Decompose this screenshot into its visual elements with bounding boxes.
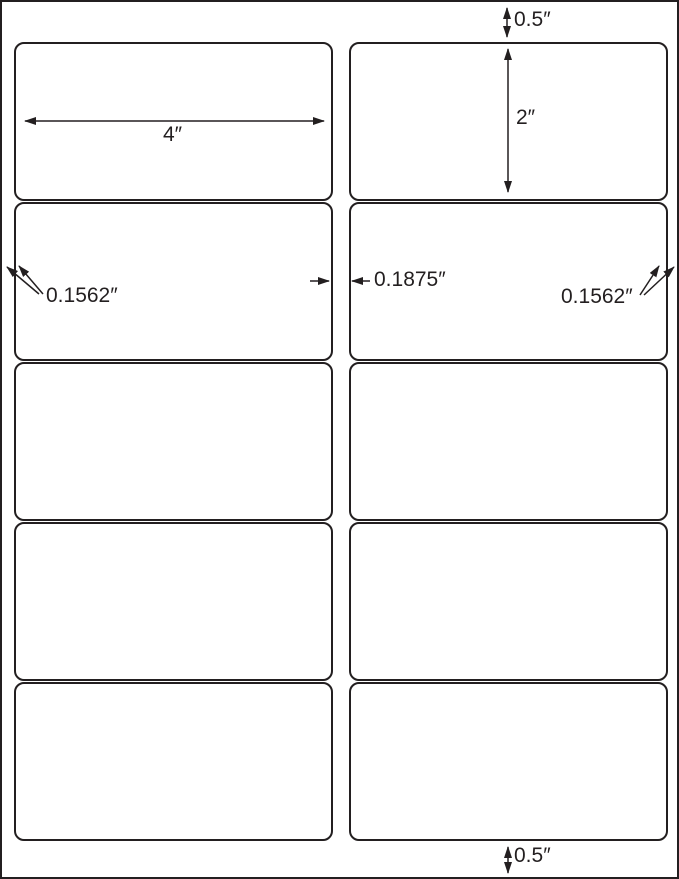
- label-cell-r3c2: [349, 362, 668, 521]
- label-cell-r1c1: [14, 42, 333, 201]
- top-margin-dimension: 0.5″: [514, 9, 551, 31]
- left-margin-dimension: 0.1562″: [46, 285, 118, 307]
- right-margin-dimension: 0.1562″: [561, 286, 633, 308]
- label-cell-r3c1: [14, 362, 333, 521]
- label-sheet-page: 0.5″ 4″ 2″ 0.1562″ 0.1875″ 0.1562″ 0.5″: [0, 0, 679, 879]
- label-height-dimension: 2″: [516, 107, 535, 129]
- label-cell-r1c2: [349, 42, 668, 201]
- label-cell-r2c1: [14, 202, 333, 361]
- bottom-margin-dimension: 0.5″: [514, 845, 551, 867]
- label-cell-r4c2: [349, 522, 668, 681]
- label-cell-r4c1: [14, 522, 333, 681]
- label-cell-r5c1: [14, 682, 333, 841]
- label-cell-r5c2: [349, 682, 668, 841]
- column-gap-dimension: 0.1875″: [374, 269, 446, 291]
- label-width-dimension: 4″: [163, 124, 182, 146]
